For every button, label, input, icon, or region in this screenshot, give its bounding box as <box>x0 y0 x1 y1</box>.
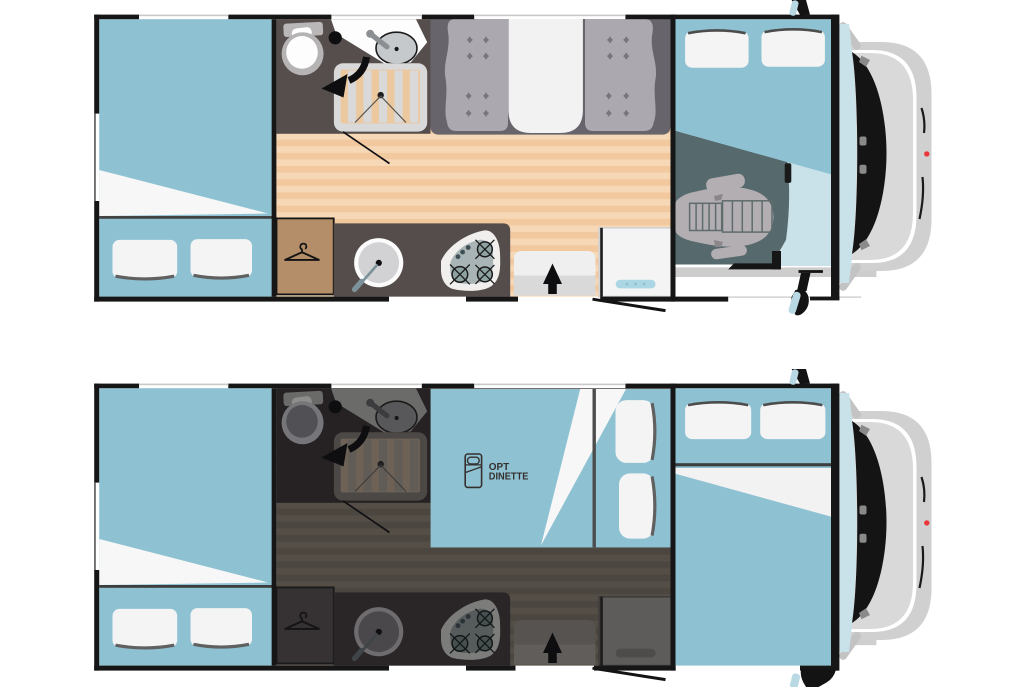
svg-text:DINETTE: DINETTE <box>489 470 529 482</box>
